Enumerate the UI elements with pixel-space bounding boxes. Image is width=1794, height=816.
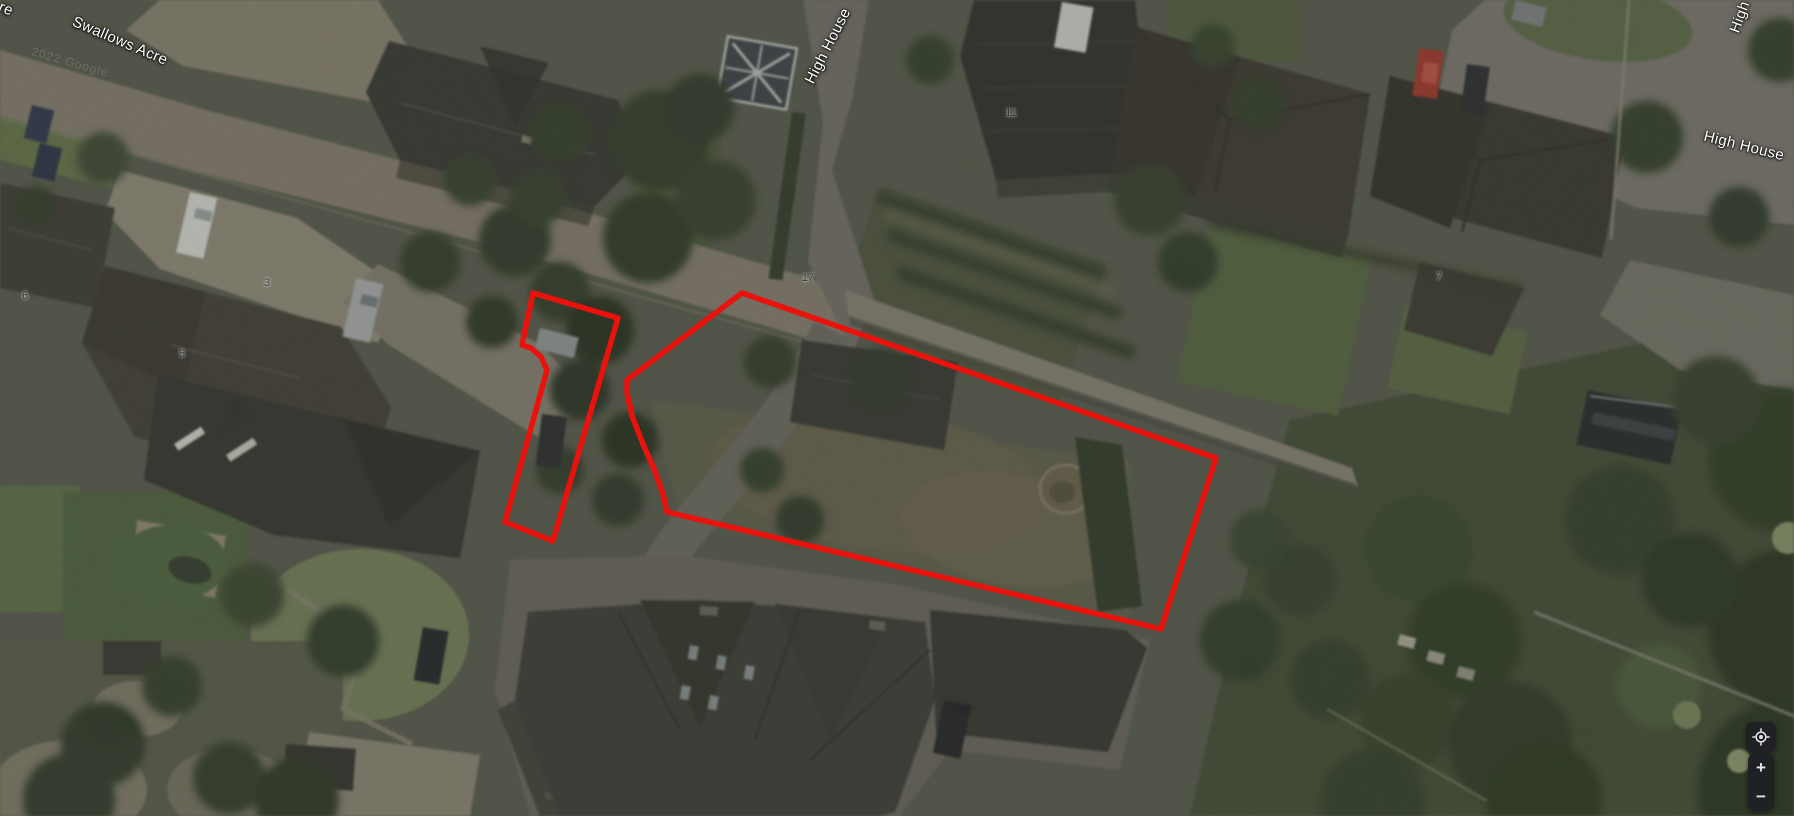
satellite-imagery [0,0,1794,816]
crosshair-target-icon [1752,728,1770,746]
zoom-in-button[interactable]: + [1748,753,1774,782]
map-canvas[interactable]: reSwallows AcreHigh HouseHighHigh House6… [0,0,1794,816]
zoom-out-button[interactable]: − [1748,782,1774,811]
noise-overlay [0,0,1794,816]
my-location-button[interactable] [1746,722,1776,752]
zoom-controls: + − [1748,753,1774,811]
